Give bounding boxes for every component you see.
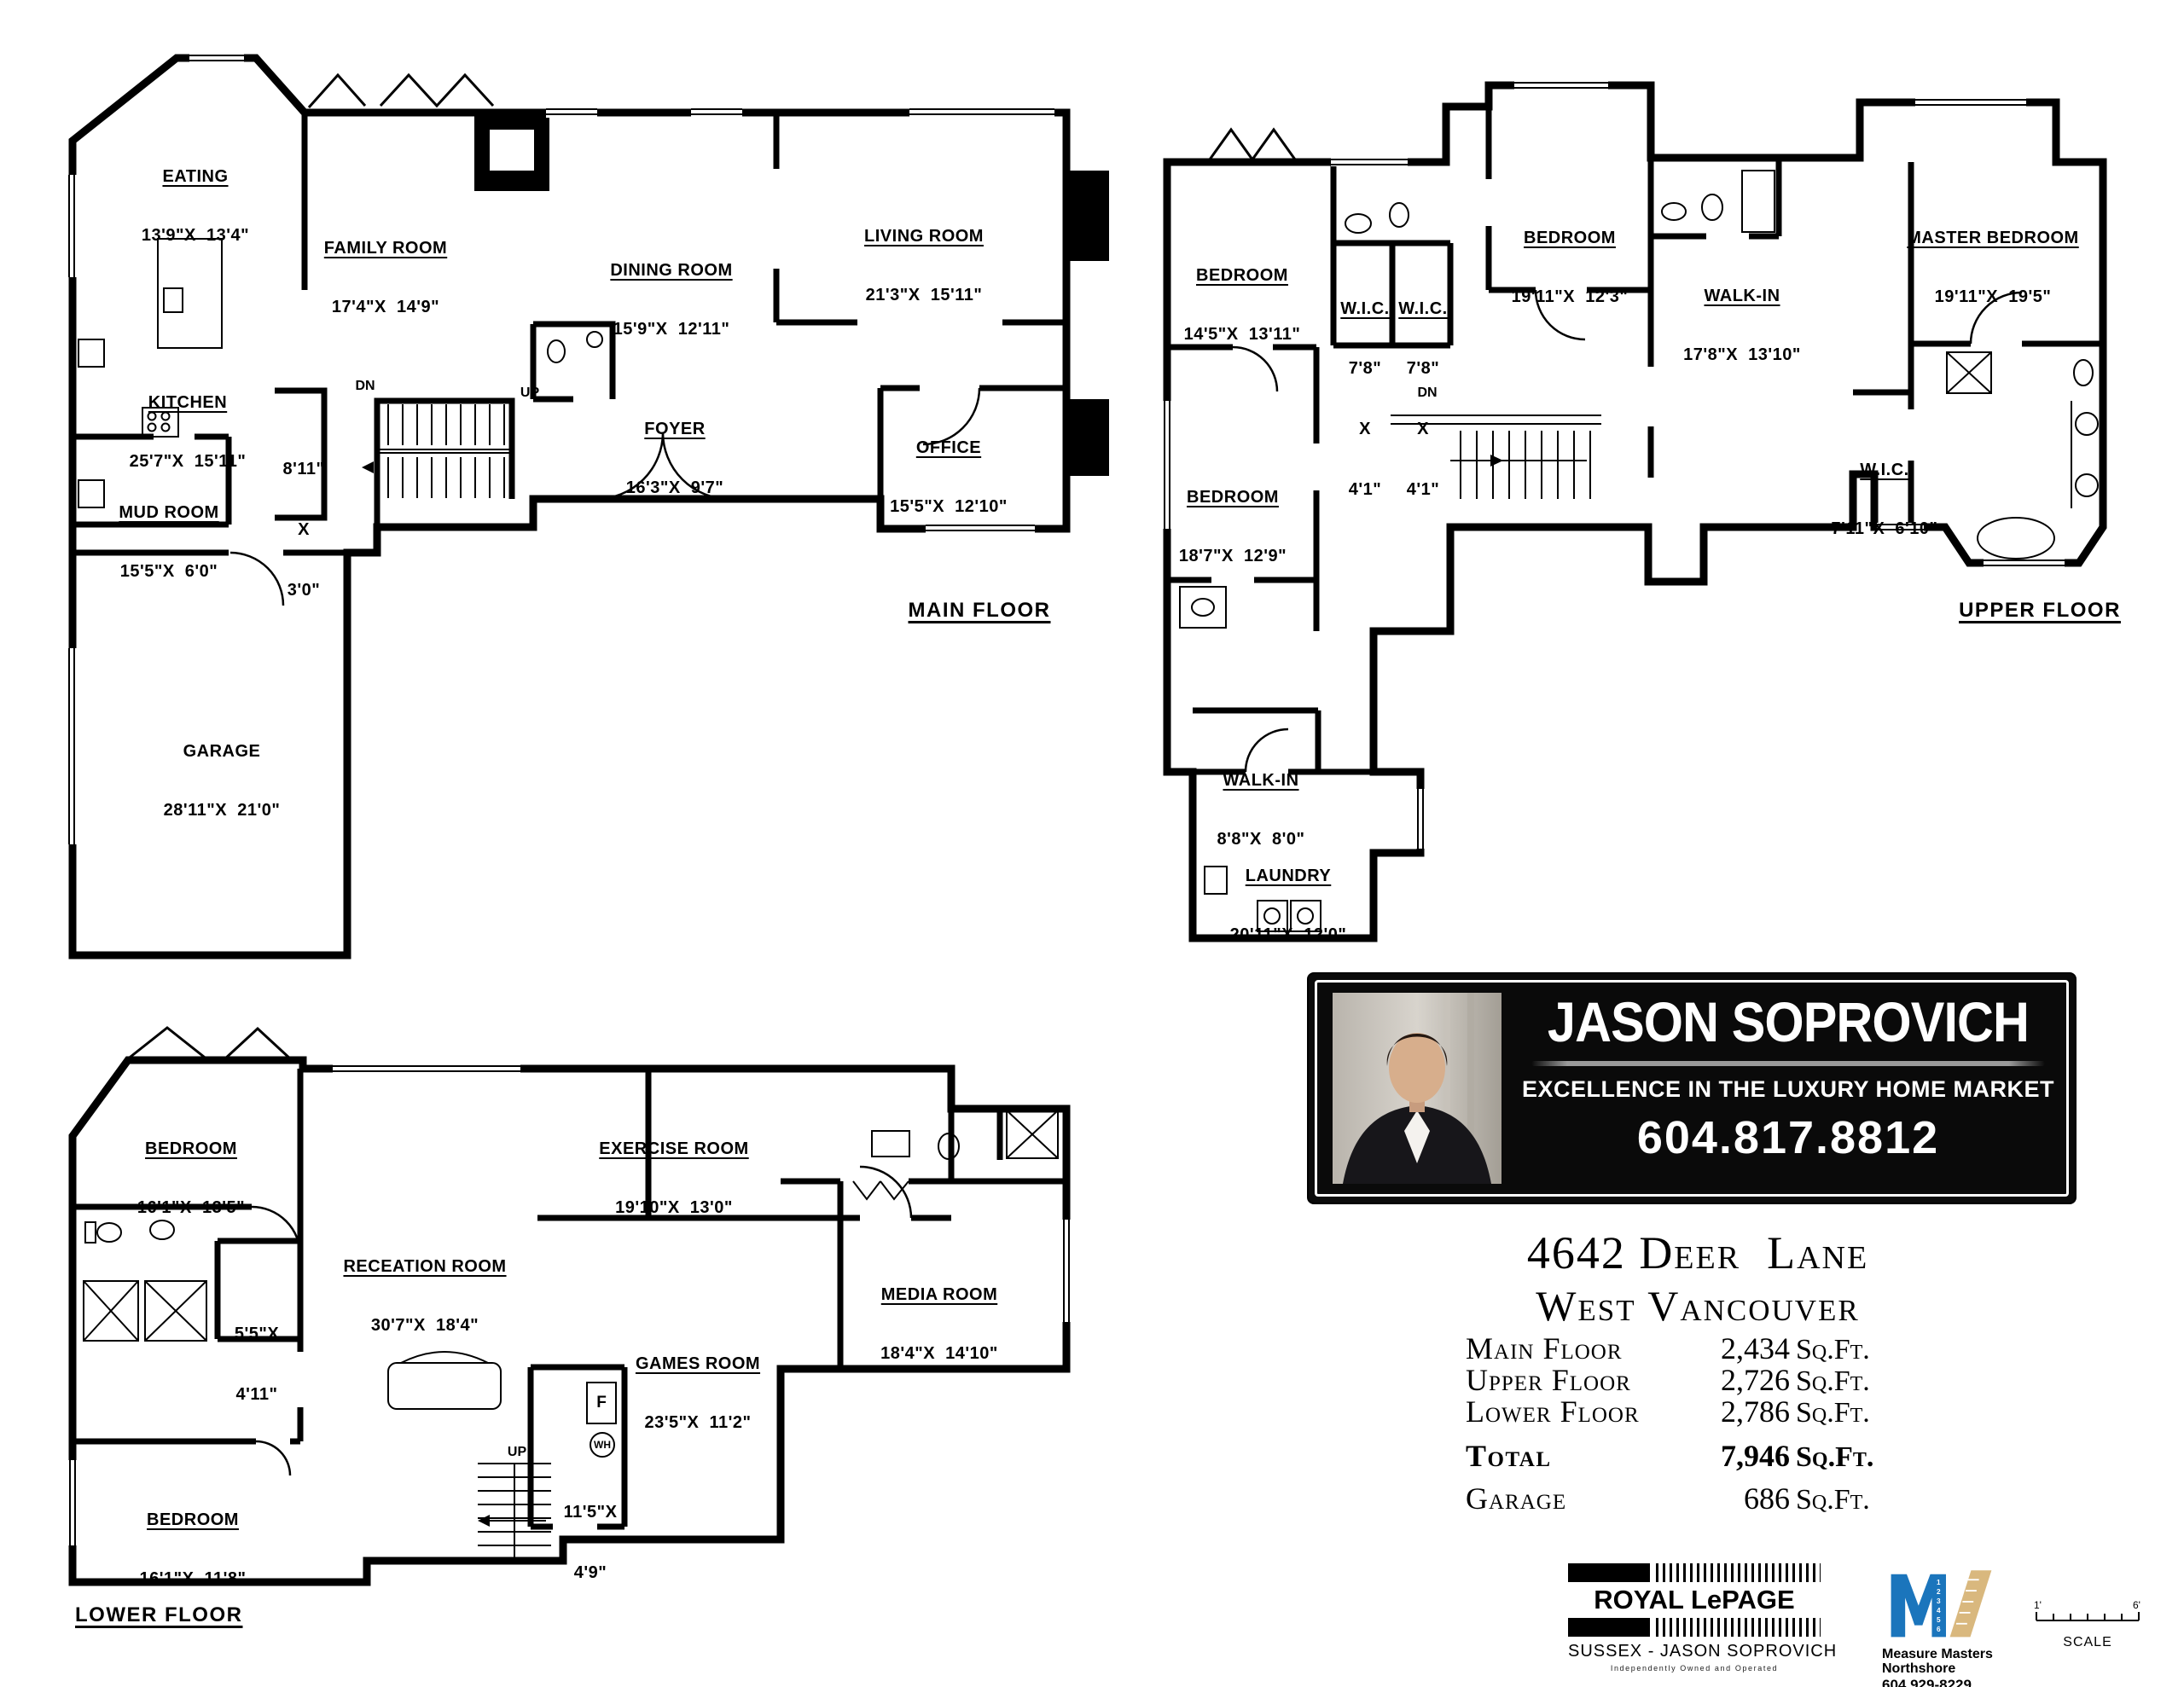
agent-banner: JASON SOPROVICH EXCELLENCE IN THE LUXURY… — [1307, 972, 2077, 1204]
closet-dims-label-lower-2: 11'5"X 4'9" — [564, 1463, 618, 1623]
stairs-dn-label-upper: DN — [1417, 386, 1437, 401]
svg-text:1: 1 — [1937, 1579, 1941, 1586]
room-name: KITCHEN — [130, 393, 247, 413]
area-row-main: Main Floor 2,434 Sq.Ft. — [1466, 1330, 1931, 1362]
room-dims: 7'11"X 6'10" — [1831, 519, 1937, 539]
room-dims: 17'4"X 14'9" — [324, 298, 447, 317]
room-label-family-room: FAMILY ROOM 17'4"X 14'9" — [324, 200, 447, 357]
area-row-total: Total 7,946 Sq.Ft. — [1466, 1438, 1931, 1470]
area-value: 2,726 — [1698, 1362, 1790, 1398]
room-label-bedroom-1: BEDROOM 14'5"X 13'11" — [1184, 227, 1301, 384]
area-value: 7,946 — [1698, 1438, 1790, 1474]
room-dims: 23'5"X 11'2" — [636, 1413, 760, 1433]
area-label: Total — [1466, 1438, 1698, 1474]
room-dims: 16'1"X 13'5" — [137, 1198, 245, 1218]
area-row-upper: Upper Floor 2,726 Sq.Ft. — [1466, 1362, 1931, 1394]
room-label-media-room: MEDIA ROOM 18'4"X 14'10" — [880, 1246, 998, 1403]
area-value: 2,434 — [1698, 1330, 1790, 1366]
area-value: 2,786 — [1698, 1394, 1790, 1429]
stairs-dn-label: DN — [355, 379, 375, 394]
room-label-mud-room: MUD ROOM 15'5"X 6'0" — [119, 464, 218, 621]
svg-text:5: 5 — [1937, 1616, 1941, 1624]
room-dim-line: X — [1340, 419, 1389, 440]
area-unit: Sq.Ft. — [1796, 1441, 1873, 1474]
measure-masters-phone: 604 929-8229 — [1882, 1677, 2027, 1687]
address-line1: 4642 Deer Lane — [1450, 1226, 1945, 1279]
area-label: Main Floor — [1466, 1330, 1698, 1366]
room-dims: 21'3"X 15'11" — [864, 286, 984, 305]
floor-title-lower: LOWER FLOOR — [75, 1603, 242, 1627]
area-unit: Sq.Ft. — [1796, 1397, 1870, 1429]
svg-text:2: 2 — [1937, 1588, 1941, 1596]
area-unit: Sq.Ft. — [1796, 1334, 1870, 1366]
room-name: BEDROOM — [139, 1510, 246, 1530]
area-row-garage: Garage 686 Sq.Ft. — [1466, 1481, 1931, 1512]
room-name: BEDROOM — [1179, 488, 1287, 507]
water-heater-label: WH — [594, 1439, 611, 1451]
room-name: MASTER BEDROOM — [1907, 229, 2078, 248]
svg-text:6: 6 — [1937, 1626, 1941, 1633]
scale-left-label: 1' — [2034, 1600, 2042, 1611]
area-table: Main Floor 2,434 Sq.Ft. Upper Floor 2,72… — [1466, 1330, 1931, 1512]
room-dims: 20'11"X 12'0" — [1230, 925, 1347, 945]
area-unit: Sq.Ft. — [1796, 1484, 1870, 1516]
room-name: GARAGE — [164, 742, 281, 762]
area-value: 686 — [1698, 1481, 1790, 1516]
closet-dims-label-lower-1: 5'5"X 4'11" — [235, 1284, 279, 1445]
room-label-living-room: LIVING ROOM 21'3"X 15'11" — [864, 188, 984, 345]
room-dims: 19'11"X 19'5" — [1907, 287, 2078, 307]
agent-portrait-illustration — [1333, 993, 1501, 1184]
room-name: BEDROOM — [137, 1139, 245, 1159]
banner-text: JASON SOPROVICH EXCELLENCE IN THE LUXURY… — [1520, 974, 2056, 1203]
room-name: OFFICE — [890, 438, 1008, 458]
room-name: W.I.C. — [1398, 299, 1447, 319]
room-name: BEDROOM — [1184, 266, 1301, 286]
area-label: Garage — [1466, 1481, 1698, 1516]
room-label-master-bedroom: MASTER BEDROOM 19'11"X 19'5" — [1907, 189, 2078, 346]
listing-address: 4642 Deer Lane West Vancouver — [1450, 1226, 1945, 1330]
furnace-label: F — [596, 1394, 607, 1412]
floorplan-flyer: EATING 13'9"X 13'4" FAMILY ROOM 17'4"X 1… — [0, 0, 2184, 1687]
room-label-recreation-room: RECEATION ROOM 30'7"X 18'4" — [343, 1218, 506, 1375]
logo-bar-row — [1568, 1562, 1821, 1583]
room-name: WALK-IN — [1217, 771, 1305, 791]
room-name: W.I.C. — [1340, 299, 1389, 319]
room-name: RECEATION ROOM — [343, 1257, 506, 1277]
royal-lepage-tagline: Independently Owned and Operated — [1568, 1664, 1821, 1673]
royal-lepage-brand: ROYAL LePAGE — [1568, 1585, 1821, 1615]
scale-right-label: 6' — [2133, 1600, 2140, 1611]
room-dim-line: 4'1" — [1340, 479, 1389, 501]
room-name: MEDIA ROOM — [880, 1285, 998, 1305]
agent-name: JASON SOPROVICH — [1547, 989, 2029, 1054]
closet-dim-line: 4'11" — [235, 1384, 279, 1406]
room-dims: 18'4"X 14'10" — [880, 1344, 998, 1364]
logo-black-bar — [1568, 1618, 1650, 1637]
scale-ruler: 1' 6' — [2032, 1600, 2143, 1629]
floor-title-upper: UPPER FLOOR — [1959, 599, 2121, 623]
room-dims: 19'10"X 13'0" — [599, 1198, 748, 1218]
room-dims: 15'5"X 12'10" — [890, 497, 1008, 517]
room-name: LAUNDRY — [1230, 867, 1347, 886]
floor-title-main: MAIN FLOOR — [909, 599, 1051, 623]
room-name: MUD ROOM — [119, 503, 218, 523]
room-label-games-room: GAMES ROOM 23'5"X 11'2" — [636, 1315, 760, 1472]
logo-stripes — [1656, 1563, 1821, 1582]
svg-text:3: 3 — [1937, 1597, 1941, 1605]
room-label-office: OFFICE 15'5"X 12'10" — [890, 399, 1008, 556]
room-dims: 14'5"X 13'11" — [1184, 325, 1301, 345]
area-unit: Sq.Ft. — [1796, 1365, 1870, 1398]
royal-lepage-logo: ROYAL LePAGE SUSSEX - JASON SOPROVICH In… — [1568, 1562, 1821, 1673]
area-row-lower: Lower Floor 2,786 Sq.Ft. — [1466, 1394, 1931, 1425]
area-label: Upper Floor — [1466, 1362, 1698, 1398]
room-label-walk-in: WALK-IN 17'8"X 13'10" — [1683, 247, 1801, 404]
address-line2: West Vancouver — [1450, 1281, 1945, 1330]
room-label-wic-a: W.I.C. 7'8" X 4'1" — [1340, 260, 1389, 540]
room-dim-line: 7'8" — [1340, 358, 1389, 380]
stairs-up-label: UP — [520, 386, 539, 401]
room-name: W.I.C. — [1831, 461, 1937, 480]
room-label-dining-room: DINING ROOM 15'9"X 12'11" — [610, 222, 732, 379]
room-label-exercise-room: EXERCISE ROOM 19'10"X 13'0" — [599, 1100, 748, 1257]
measure-masters-name: Measure Masters Northshore — [1882, 1647, 2027, 1676]
royal-lepage-sub: SUSSEX - JASON SOPROVICH — [1568, 1642, 1821, 1661]
logo-black-bar — [1568, 1563, 1650, 1582]
room-label-garage: GARAGE 28'11"X 21'0" — [164, 703, 281, 860]
room-name: FOYER — [626, 420, 724, 439]
room-dims: 15'5"X 6'0" — [119, 562, 218, 582]
room-dims: 16'3"X 9'7" — [626, 478, 724, 498]
logo-stripes — [1656, 1618, 1821, 1637]
closet-dims-label: 8'11" X 3'0" — [282, 420, 324, 641]
room-label-laundry: LAUNDRY 20'11"X 12'0" — [1230, 827, 1347, 984]
closet-dim-line: 8'11" — [282, 459, 324, 480]
agent-phone: 604.817.8812 — [1520, 1111, 2056, 1164]
stairs-up-label-lower: UP — [508, 1445, 526, 1460]
room-dims: 17'8"X 13'10" — [1683, 345, 1801, 365]
agent-photo — [1333, 993, 1501, 1184]
room-dims: 19'11"X 12'3" — [1512, 287, 1629, 307]
room-dim-line: X — [1398, 419, 1447, 440]
closet-dim-line: 5'5"X — [235, 1324, 279, 1345]
room-name: LIVING ROOM — [864, 227, 984, 246]
closet-dim-line: 11'5"X — [564, 1502, 618, 1523]
closet-dim-line: 3'0" — [282, 580, 324, 601]
measure-masters-logo: 123 456 Measure Masters Northshore 604 9… — [1882, 1562, 2027, 1687]
room-dims: 28'11"X 21'0" — [164, 801, 281, 820]
room-dims: 15'9"X 12'11" — [610, 320, 732, 339]
room-name: EATING — [142, 167, 249, 187]
room-name: WALK-IN — [1683, 287, 1801, 306]
room-label-wic-master: W.I.C. 7'11"X 6'10" — [1831, 421, 1937, 578]
room-name: EXERCISE ROOM — [599, 1139, 748, 1159]
scale-bar: 1' 6' SCALE — [2032, 1600, 2143, 1650]
closet-dim-line: 4'9" — [564, 1562, 618, 1584]
room-label-bedroom-3: BEDROOM 18'7"X 12'9" — [1179, 449, 1287, 606]
room-name: GAMES ROOM — [636, 1354, 760, 1374]
banner-divider — [1531, 1061, 2046, 1066]
room-dim-line: 7'8" — [1398, 358, 1447, 380]
logo-bar-row — [1568, 1617, 1821, 1638]
svg-text:4: 4 — [1937, 1607, 1941, 1615]
room-dims: 13'9"X 13'4" — [142, 226, 249, 246]
scale-label: SCALE — [2032, 1635, 2143, 1650]
room-label-bedroom-lower-1: BEDROOM 16'1"X 13'5" — [137, 1100, 245, 1257]
room-name: FAMILY ROOM — [324, 239, 447, 258]
room-label-foyer: FOYER 16'3"X 9'7" — [626, 380, 724, 537]
room-dims: 18'7"X 12'9" — [1179, 547, 1287, 566]
measure-masters-mark: 123 456 — [1882, 1562, 2010, 1641]
room-dims: 16'1"X 11'8" — [139, 1569, 246, 1589]
area-label: Lower Floor — [1466, 1394, 1698, 1429]
room-name: DINING ROOM — [610, 261, 732, 281]
closet-dim-line: X — [282, 519, 324, 541]
room-label-bedroom-2: BEDROOM 19'11"X 12'3" — [1512, 189, 1629, 346]
room-name: BEDROOM — [1512, 229, 1629, 248]
agent-tagline: EXCELLENCE IN THE LUXURY HOME MARKET — [1520, 1076, 2056, 1103]
room-dim-line: 4'1" — [1398, 479, 1447, 501]
room-label-eating: EATING 13'9"X 13'4" — [142, 128, 249, 285]
room-dims: 30'7"X 18'4" — [343, 1316, 506, 1336]
